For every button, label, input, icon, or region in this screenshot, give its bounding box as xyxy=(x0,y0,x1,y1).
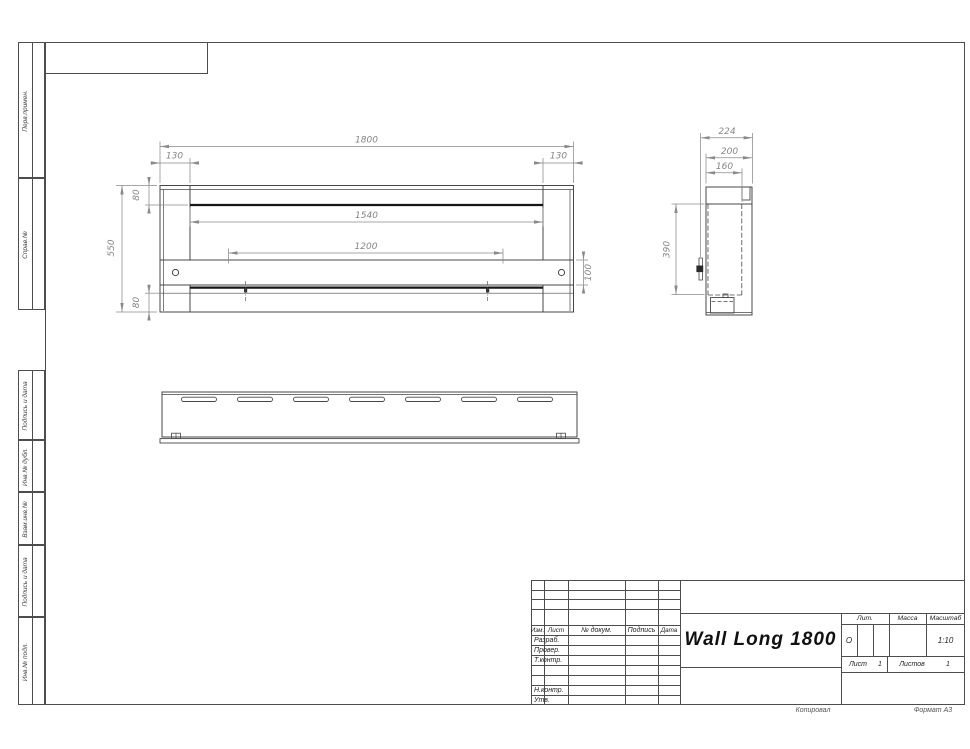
header-sign: Подпись xyxy=(625,625,658,635)
bottom-view xyxy=(160,392,579,443)
drawing-sheet: Перв.примен. Справ.№ Подпись и дата Инв.… xyxy=(0,0,970,749)
header-izm: Изм. xyxy=(531,625,544,635)
doc-title: Wall Long 1800 xyxy=(682,613,839,667)
scale-value: 1:10 xyxy=(926,624,965,656)
row-nkontr: Н.контр. xyxy=(531,685,568,695)
burner-box xyxy=(711,298,735,314)
wall-bracket-block xyxy=(696,266,703,273)
mounting-rail xyxy=(160,439,579,443)
row-tkontr: Т.контр. xyxy=(531,655,568,665)
sheet-label: Лист xyxy=(843,656,873,672)
vent-slots xyxy=(182,397,553,401)
sheets-label: Листов xyxy=(889,656,935,672)
row-razrab: Разраб. xyxy=(531,635,568,645)
dim-overall-width: 1800 xyxy=(355,136,378,146)
dim-depth-body: 200 xyxy=(721,147,738,157)
mount-hole-right xyxy=(558,269,564,275)
dim-inner-height: 390 xyxy=(663,241,673,258)
side-view xyxy=(696,187,752,315)
sheet-value: 1 xyxy=(873,656,887,672)
header-date: Дата xyxy=(658,625,680,635)
dim-height: 550 xyxy=(107,239,117,256)
dim-depth-inner: 160 xyxy=(716,162,733,172)
mass-label: Масса xyxy=(889,613,926,624)
dim-bottom-offset: 80 xyxy=(132,297,142,309)
header-list: Лист xyxy=(544,625,568,635)
sheets-value: 1 xyxy=(935,656,961,672)
row-utv: Утв. xyxy=(531,695,568,705)
header-doc: № докум. xyxy=(568,625,625,635)
row-prover: Провер. xyxy=(531,645,568,655)
mount-hole-left xyxy=(172,269,178,275)
dim-top-offset: 80 xyxy=(132,189,142,201)
front-view-dimensions xyxy=(116,142,588,321)
dim-depth-overall: 224 xyxy=(718,127,735,137)
lit-value: О xyxy=(841,624,857,656)
dim-opening-width: 1540 xyxy=(355,211,378,221)
dim-burner-length: 1200 xyxy=(355,242,378,252)
scale-label: Масштаб xyxy=(926,613,965,624)
dim-shelf-height: 100 xyxy=(584,264,594,281)
dim-side-left: 130 xyxy=(166,152,183,162)
side-view-dimensions xyxy=(672,133,753,295)
footer-copied: Копировал xyxy=(770,707,856,714)
footer-format: Формат А3 xyxy=(898,707,968,714)
lit-label: Лит. xyxy=(841,613,889,624)
dim-side-right: 130 xyxy=(550,152,567,162)
